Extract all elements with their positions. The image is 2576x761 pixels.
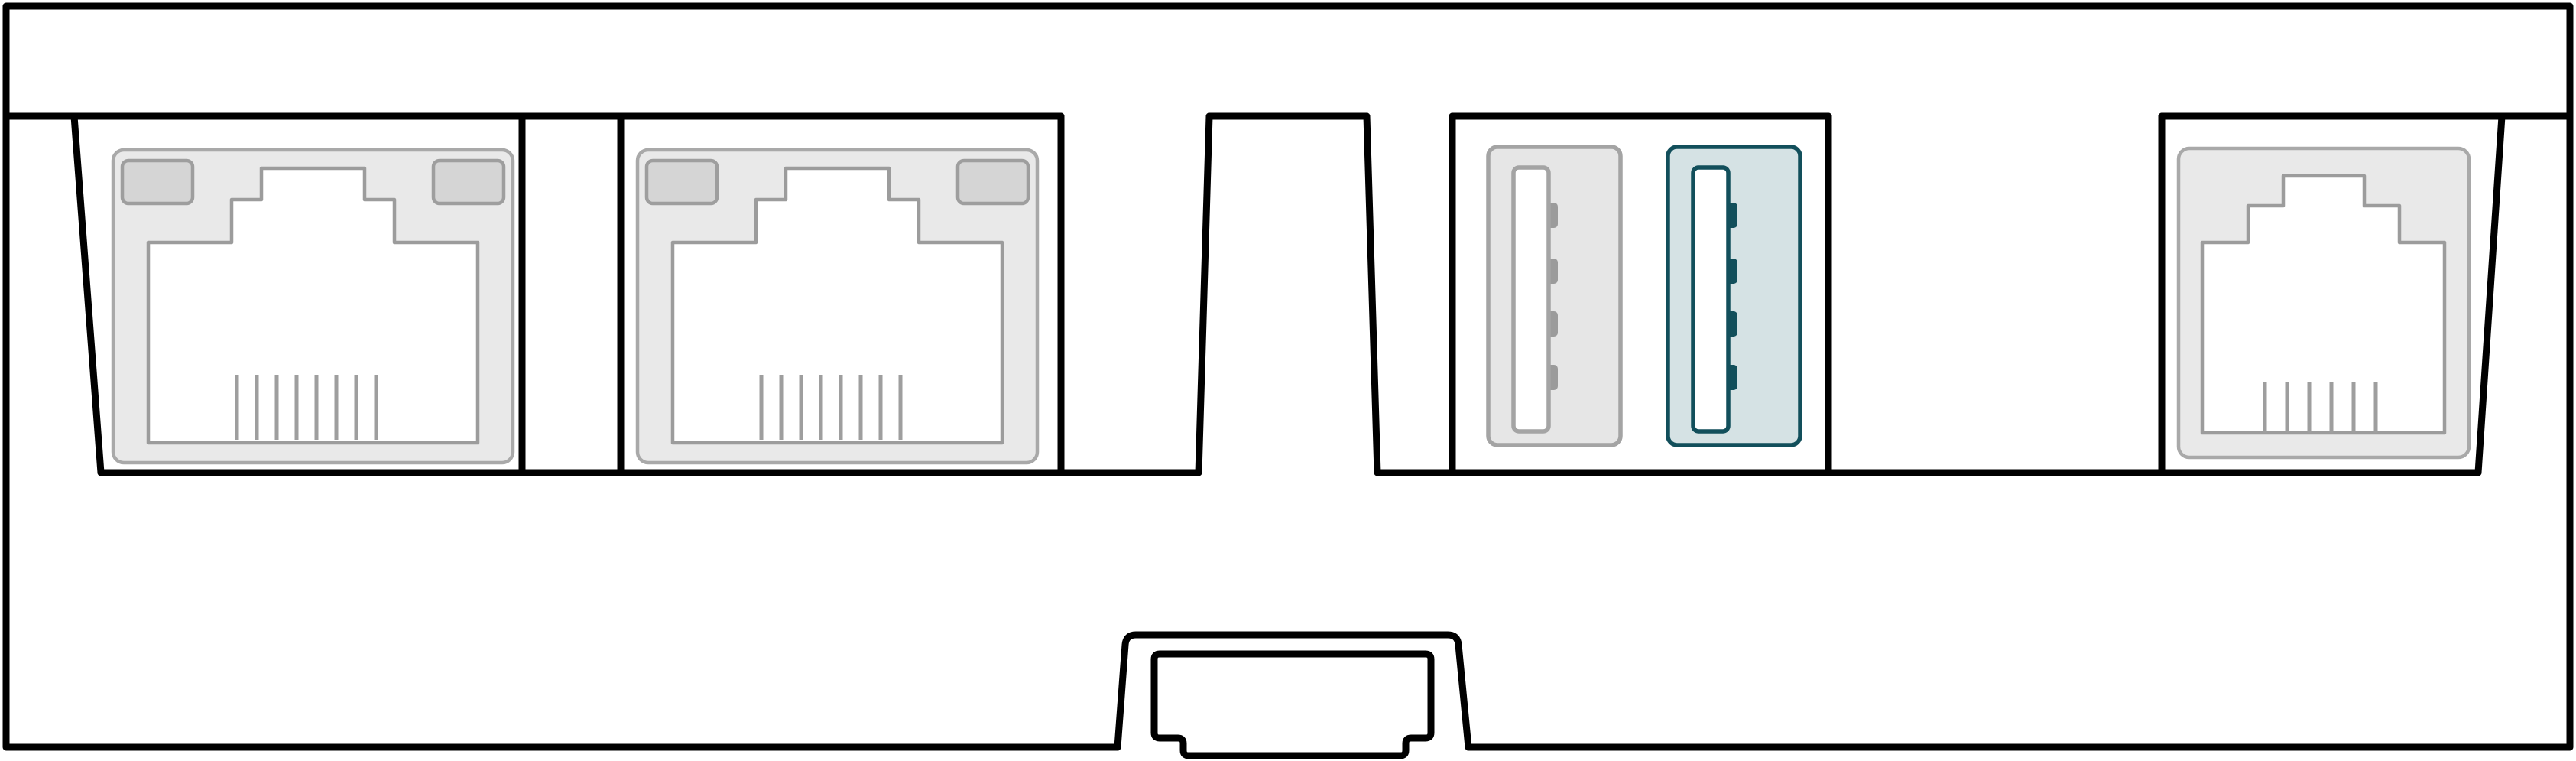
phone-port	[2179, 148, 2469, 457]
usb-port-1-slot	[1513, 167, 1549, 431]
usb-port-2-slot	[1693, 167, 1728, 431]
usb-port-2-body	[1668, 147, 1800, 445]
ethernet-port-2-led-window-right	[958, 161, 1028, 203]
ethernet-port-1-led-window-left	[122, 161, 193, 203]
panel-diagram-svg	[0, 0, 2576, 761]
ethernet-port-2	[638, 150, 1037, 463]
ethernet-port-1	[113, 150, 513, 463]
ethernet-port-1-led-window-right	[433, 161, 504, 203]
ethernet-port-2-led-window-left	[647, 161, 717, 203]
rear-panel-diagram	[0, 0, 2576, 761]
usb-port-1-body	[1488, 147, 1621, 445]
module-connector	[1154, 654, 1431, 756]
usb-port-1	[1488, 147, 1621, 445]
usb-port-2	[1668, 147, 1800, 445]
